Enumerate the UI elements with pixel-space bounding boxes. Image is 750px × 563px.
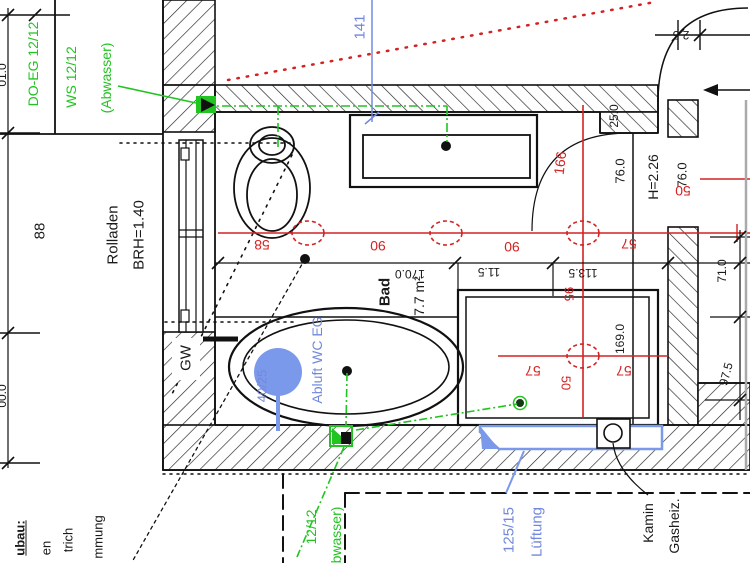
fixture-vanity — [350, 115, 537, 187]
note-line-1: ubau: — [14, 520, 27, 555]
label-ws: WS 12/12 — [64, 46, 78, 107]
note-line-4: mmung — [92, 515, 105, 558]
label-abluft-wc-eg: Abluft WC EG — [310, 316, 324, 403]
door-swing-top-right — [658, 8, 748, 102]
walls — [163, 0, 750, 470]
label-rolladen: Rolladen — [106, 205, 121, 264]
label-dim-50-right: 50 — [675, 184, 691, 198]
label-duct-125-15: 125/15 — [502, 507, 517, 553]
floorplan-canvas: DO-EG 12/12 WS 12/12 (Abwasser) 01.0 88 … — [0, 0, 750, 563]
vanity-drain-dot — [442, 142, 451, 151]
wall-top-band — [215, 85, 658, 112]
shower-drain-dot — [516, 399, 524, 407]
label-dim-2-5: 2.5 — [673, 29, 690, 41]
label-duct-40-25: 40/25 — [256, 370, 269, 403]
label-dim-166: 166 — [552, 151, 569, 176]
fixture-wc — [234, 127, 310, 238]
label-brh: BRH=1.40 — [132, 200, 147, 270]
label-abwasser-top: (Abwasser) — [99, 43, 113, 114]
room-name: Bad — [378, 278, 393, 306]
label-gasheiz: Gasheiz. — [667, 498, 681, 553]
label-dim-90-a: 90 — [370, 239, 386, 253]
label-dim-57-b: 57 — [525, 364, 541, 378]
label-do-eg: DO-EG 12/12 — [26, 22, 40, 107]
label-dim-76-0-a: 76.0 — [614, 158, 627, 183]
label-dim-90-b: 90 — [504, 240, 520, 254]
label-dim-71-0: 71.0 — [716, 259, 728, 282]
label-dim-88: 88 — [33, 223, 48, 240]
label-gw: GW — [179, 345, 194, 371]
label-height-h226: H=2.26 — [646, 154, 660, 200]
label-dim-50-shower: 50 — [560, 376, 573, 390]
label-dim-25-0: 25.0 — [608, 104, 620, 127]
sewer-symbol-top — [196, 96, 216, 113]
room-area: 7.7 m² — [412, 276, 426, 316]
label-dim-57-c: 57 — [616, 364, 632, 378]
note-line-3: trich — [62, 528, 75, 553]
label-dim-cut-top: 01.0 — [0, 63, 8, 86]
label-abwasser-bottom: (Abwasser) — [329, 507, 343, 563]
label-dim-169-0: 169.0 — [614, 324, 626, 354]
window-left — [165, 136, 215, 332]
label-dim-141: 141 — [353, 14, 368, 39]
label-dim-113-5: 113.5 — [568, 267, 597, 279]
label-dim-57-a: 57 — [621, 237, 637, 251]
label-dim-58: 58 — [254, 238, 270, 252]
wall-bottom-right-patch — [698, 383, 750, 425]
label-dim-11-5: 11.5 — [478, 266, 500, 278]
wall-top-right-column — [668, 100, 698, 137]
label-lueftung: Lüftung — [530, 507, 545, 557]
label-kamin: Kamin — [641, 503, 655, 543]
label-dim-cut-bottom: 00.0 — [0, 384, 8, 407]
label-dim-95: 95 — [563, 287, 576, 301]
door-arcs — [532, 8, 748, 425]
fixture-shower — [458, 263, 658, 425]
label-sewer-12-12: 12/12 — [304, 509, 318, 544]
arrow-left — [703, 84, 718, 96]
red-dotted-diagonal — [228, 2, 655, 80]
note-line-2: en — [40, 541, 53, 555]
